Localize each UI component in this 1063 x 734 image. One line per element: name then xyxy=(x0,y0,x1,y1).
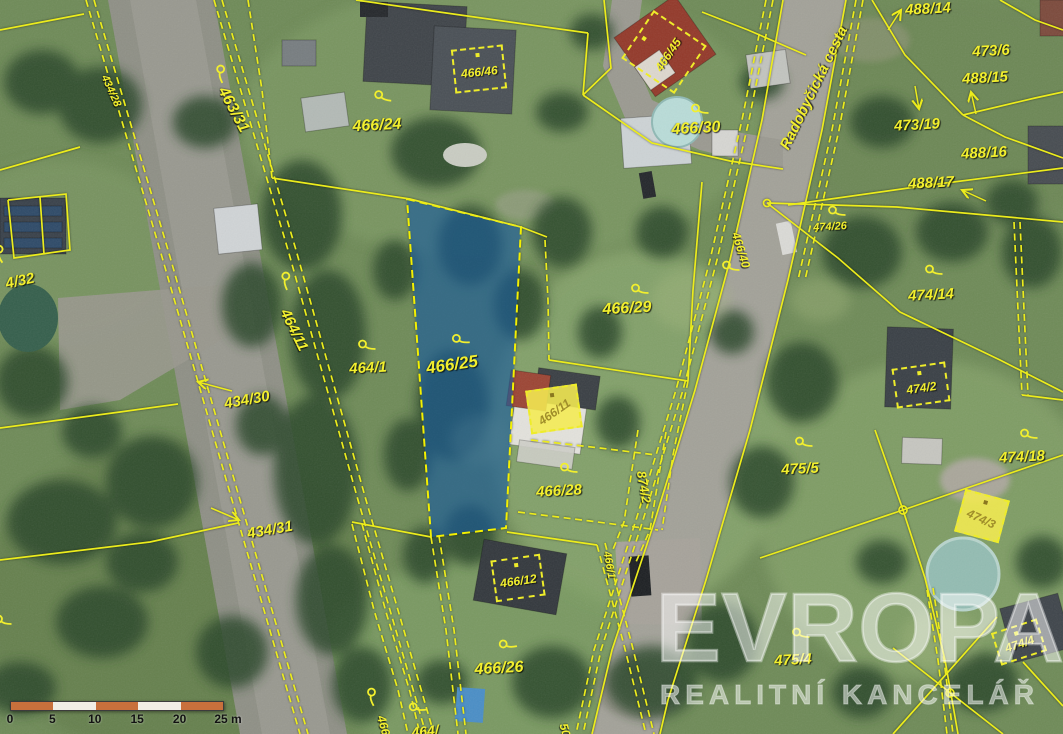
scale-tick-label: 25 m xyxy=(214,712,241,726)
parcel-labels-layer: 463/31434/28466/24464/11464/1434/30434/3… xyxy=(0,0,1063,734)
building-dot xyxy=(1014,631,1019,636)
parcel-label: 464/11 xyxy=(277,306,312,354)
parcel-label: 466/25 xyxy=(425,351,479,378)
parcel-number-symbol xyxy=(690,103,711,117)
parcel-label: 474/14 xyxy=(908,285,955,304)
building-parcel-box: 474/4 xyxy=(991,618,1047,665)
cadastral-map[interactable]: .s{fill:none;stroke:#ecec1c;stroke-width… xyxy=(0,0,1063,734)
building-parcel-box: 474/3 xyxy=(954,489,1010,543)
parcel-label: 474/26 xyxy=(813,220,847,234)
parcel-number-symbol xyxy=(275,268,297,293)
parcel-label: 488/15 xyxy=(962,68,1009,87)
parcel-label: 50 xyxy=(557,722,574,734)
building-dot xyxy=(641,36,647,42)
parcel-label: 466/24 xyxy=(352,116,402,137)
parcel-label: 464/1 xyxy=(349,359,387,378)
parcel-number-symbol xyxy=(721,260,742,274)
street-name-label: Radobyčická cesta xyxy=(777,24,851,153)
scale-segment xyxy=(53,702,95,710)
building-dot xyxy=(917,371,922,376)
parcel-number-symbol xyxy=(372,89,394,105)
parcel-label: 434/31 xyxy=(246,518,294,543)
parcel-label: 466/ xyxy=(374,714,394,734)
building-parcel-box: 466/46 xyxy=(451,44,507,93)
scale-tick-label: 20 xyxy=(173,712,186,726)
parcel-number-symbol xyxy=(0,614,14,628)
parcel-number-symbol xyxy=(794,436,815,450)
parcel-number-symbol xyxy=(1019,428,1040,442)
scale-tick-label: 15 xyxy=(131,712,144,726)
building-parcel-box: 466/11 xyxy=(525,384,583,435)
parcel-number-symbol xyxy=(450,332,472,348)
parcel-number-symbol xyxy=(496,636,519,654)
building-dot xyxy=(475,53,479,57)
parcel-label: 434/30 xyxy=(223,388,271,413)
parcel-number-symbol xyxy=(361,684,384,709)
parcel-label: 464/ xyxy=(411,722,440,734)
scale-segment xyxy=(181,702,223,710)
scale-segment xyxy=(11,702,53,710)
building-parcel-box: 466/12 xyxy=(490,554,545,603)
building-parcel-label: 474/3 xyxy=(965,506,998,531)
building-parcel-label: 466/45 xyxy=(652,36,684,74)
building-parcel-label: 466/46 xyxy=(460,63,498,81)
parcel-label: 434/28 xyxy=(99,73,124,109)
parcel-label: 874/2 xyxy=(634,470,654,505)
scale-tick-label: 10 xyxy=(88,712,101,726)
building-parcel-box: 474/2 xyxy=(891,361,950,408)
scale-tick-label: 5 xyxy=(49,712,56,726)
parcel-label: 488/17 xyxy=(908,173,955,192)
parcel-number-symbol xyxy=(559,462,580,476)
scale-tick-label: 0 xyxy=(7,712,14,726)
building-parcel-label: 466/11 xyxy=(536,396,573,428)
building-parcel-box: 466/45 xyxy=(621,10,706,94)
building-dot xyxy=(550,393,555,398)
parcel-label: 466/30 xyxy=(671,119,721,140)
parcel-label: 488/14 xyxy=(905,0,952,19)
building-parcel-label: 474/2 xyxy=(906,379,938,397)
parcel-number-symbol xyxy=(924,264,945,278)
parcel-label: 463/31 xyxy=(214,84,253,136)
parcel-label: 4/32 xyxy=(4,270,36,293)
parcel-number-symbol xyxy=(630,283,651,297)
parcel-label: 474/18 xyxy=(999,447,1046,466)
scale-bar-segments xyxy=(10,701,224,711)
building-dot xyxy=(514,563,519,568)
parcel-number-symbol xyxy=(0,241,12,266)
parcel-number-symbol xyxy=(357,339,378,353)
parcel-label: 475/5 xyxy=(781,460,819,479)
parcel-label: 466/1 xyxy=(601,550,618,579)
parcel-label: 488/16 xyxy=(961,143,1008,162)
parcel-number-symbol xyxy=(791,627,812,641)
map-scale-bar: 0510152025 m xyxy=(10,701,224,711)
parcel-number-symbol xyxy=(827,205,848,219)
parcel-number-symbol xyxy=(210,61,232,86)
parcel-label: 473/6 xyxy=(972,42,1010,61)
building-parcel-label: 466/12 xyxy=(499,572,537,591)
parcel-label: 466/28 xyxy=(536,481,583,500)
parcel-label: 475/4 xyxy=(774,651,812,670)
building-dot xyxy=(983,500,988,505)
scale-segment xyxy=(96,702,138,710)
parcel-label: 473/19 xyxy=(894,115,941,134)
parcel-number-symbol xyxy=(406,699,429,716)
parcel-label: 466/29 xyxy=(602,299,652,320)
scale-segment xyxy=(138,702,180,710)
parcel-label: 466/26 xyxy=(474,659,524,680)
building-parcel-label: 474/4 xyxy=(1003,633,1036,656)
